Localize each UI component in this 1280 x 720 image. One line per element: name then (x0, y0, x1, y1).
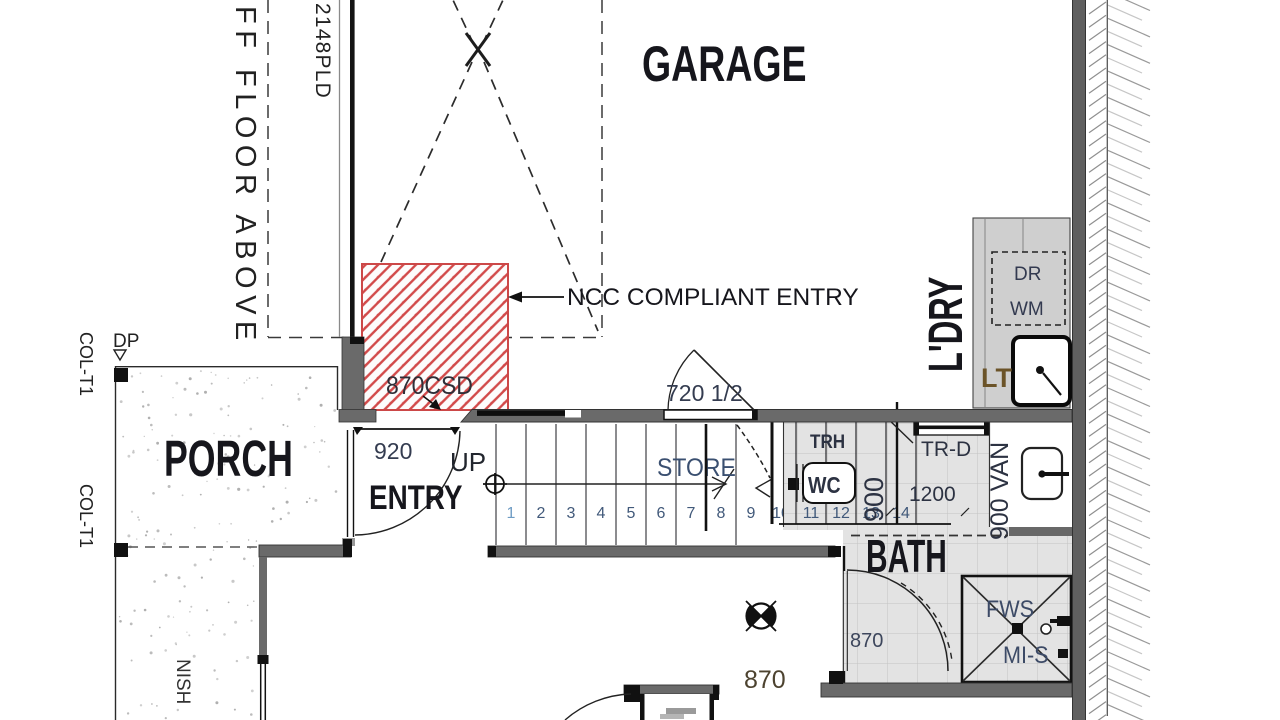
svg-text:LT: LT (981, 363, 1012, 393)
svg-text:ENTRY: ENTRY (369, 478, 463, 516)
svg-text:920: 920 (374, 438, 412, 464)
svg-text:870: 870 (744, 666, 786, 694)
svg-text:11: 11 (803, 505, 820, 522)
svg-text:9: 9 (747, 505, 756, 522)
svg-text:6: 6 (657, 505, 666, 522)
svg-text:1200: 1200 (909, 483, 956, 506)
svg-text:WM: WM (1010, 299, 1044, 320)
svg-text:DR: DR (1014, 264, 1041, 285)
svg-text:WC: WC (808, 473, 841, 499)
svg-text:2: 2 (537, 505, 546, 522)
svg-text:L'DRY: L'DRY (919, 277, 973, 372)
svg-text:COL-T1: COL-T1 (76, 484, 96, 548)
svg-text:2148PLD: 2148PLD (311, 3, 334, 99)
svg-text:NCC COMPLIANT ENTRY: NCC COMPLIANT ENTRY (567, 284, 859, 311)
svg-text:PORCH: PORCH (164, 431, 293, 488)
svg-text:7: 7 (687, 505, 696, 522)
svg-text:GARAGE: GARAGE (642, 37, 807, 92)
svg-text:8: 8 (717, 505, 726, 522)
svg-text:870: 870 (850, 630, 883, 652)
svg-text:STORE: STORE (657, 454, 736, 482)
svg-text:FF FLOOR ABOVE: FF FLOOR ABOVE (229, 6, 261, 347)
svg-text:NISH: NISH (172, 659, 193, 704)
svg-text:720 1/2: 720 1/2 (666, 380, 743, 406)
svg-text:14: 14 (892, 505, 910, 522)
svg-text:MI-S: MI-S (1003, 641, 1049, 668)
svg-text:UP: UP (450, 447, 486, 477)
svg-text:COL-T1: COL-T1 (76, 332, 96, 396)
svg-text:5: 5 (627, 505, 636, 522)
svg-text:3: 3 (567, 505, 576, 522)
svg-text:900: 900 (859, 477, 889, 522)
svg-text:870CSD: 870CSD (386, 372, 473, 400)
svg-text:DP: DP (113, 331, 139, 352)
svg-text:1: 1 (507, 505, 516, 522)
svg-text:12: 12 (832, 505, 850, 522)
svg-text:900 VAN: 900 VAN (986, 442, 1014, 540)
svg-text:FWS: FWS (986, 595, 1034, 622)
svg-text:TR-D: TR-D (921, 438, 971, 461)
svg-text:TRH: TRH (810, 431, 845, 452)
svg-text:4: 4 (597, 505, 606, 522)
